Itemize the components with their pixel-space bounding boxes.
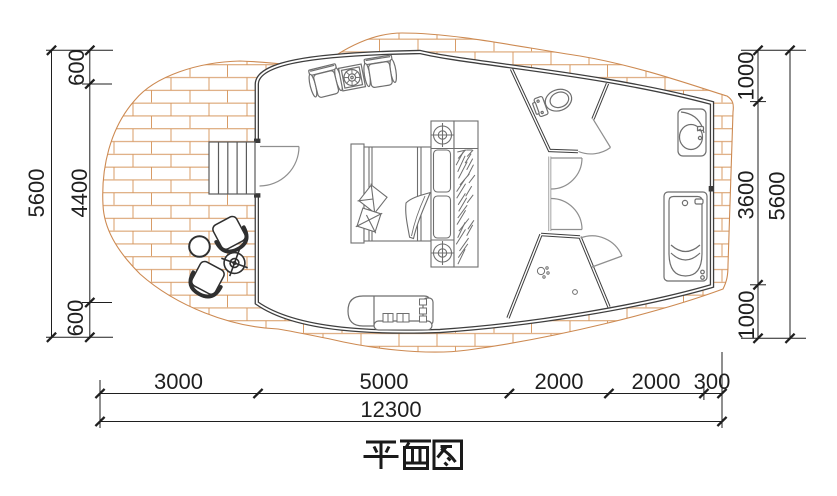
svg-text:600: 600 [63, 300, 88, 337]
svg-text:1000: 1000 [734, 291, 759, 340]
svg-text:600: 600 [64, 49, 89, 86]
svg-text:5000: 5000 [360, 369, 409, 394]
svg-text:300: 300 [694, 369, 731, 394]
svg-text:3000: 3000 [154, 369, 203, 394]
svg-text:3600: 3600 [734, 171, 759, 220]
svg-text:5600: 5600 [24, 169, 49, 218]
svg-text:12300: 12300 [360, 397, 421, 422]
svg-text:2000: 2000 [535, 369, 584, 394]
svg-text:1000: 1000 [734, 52, 759, 101]
svg-text:5600: 5600 [765, 172, 790, 221]
svg-text:2000: 2000 [632, 369, 681, 394]
svg-text:4400: 4400 [67, 169, 92, 218]
